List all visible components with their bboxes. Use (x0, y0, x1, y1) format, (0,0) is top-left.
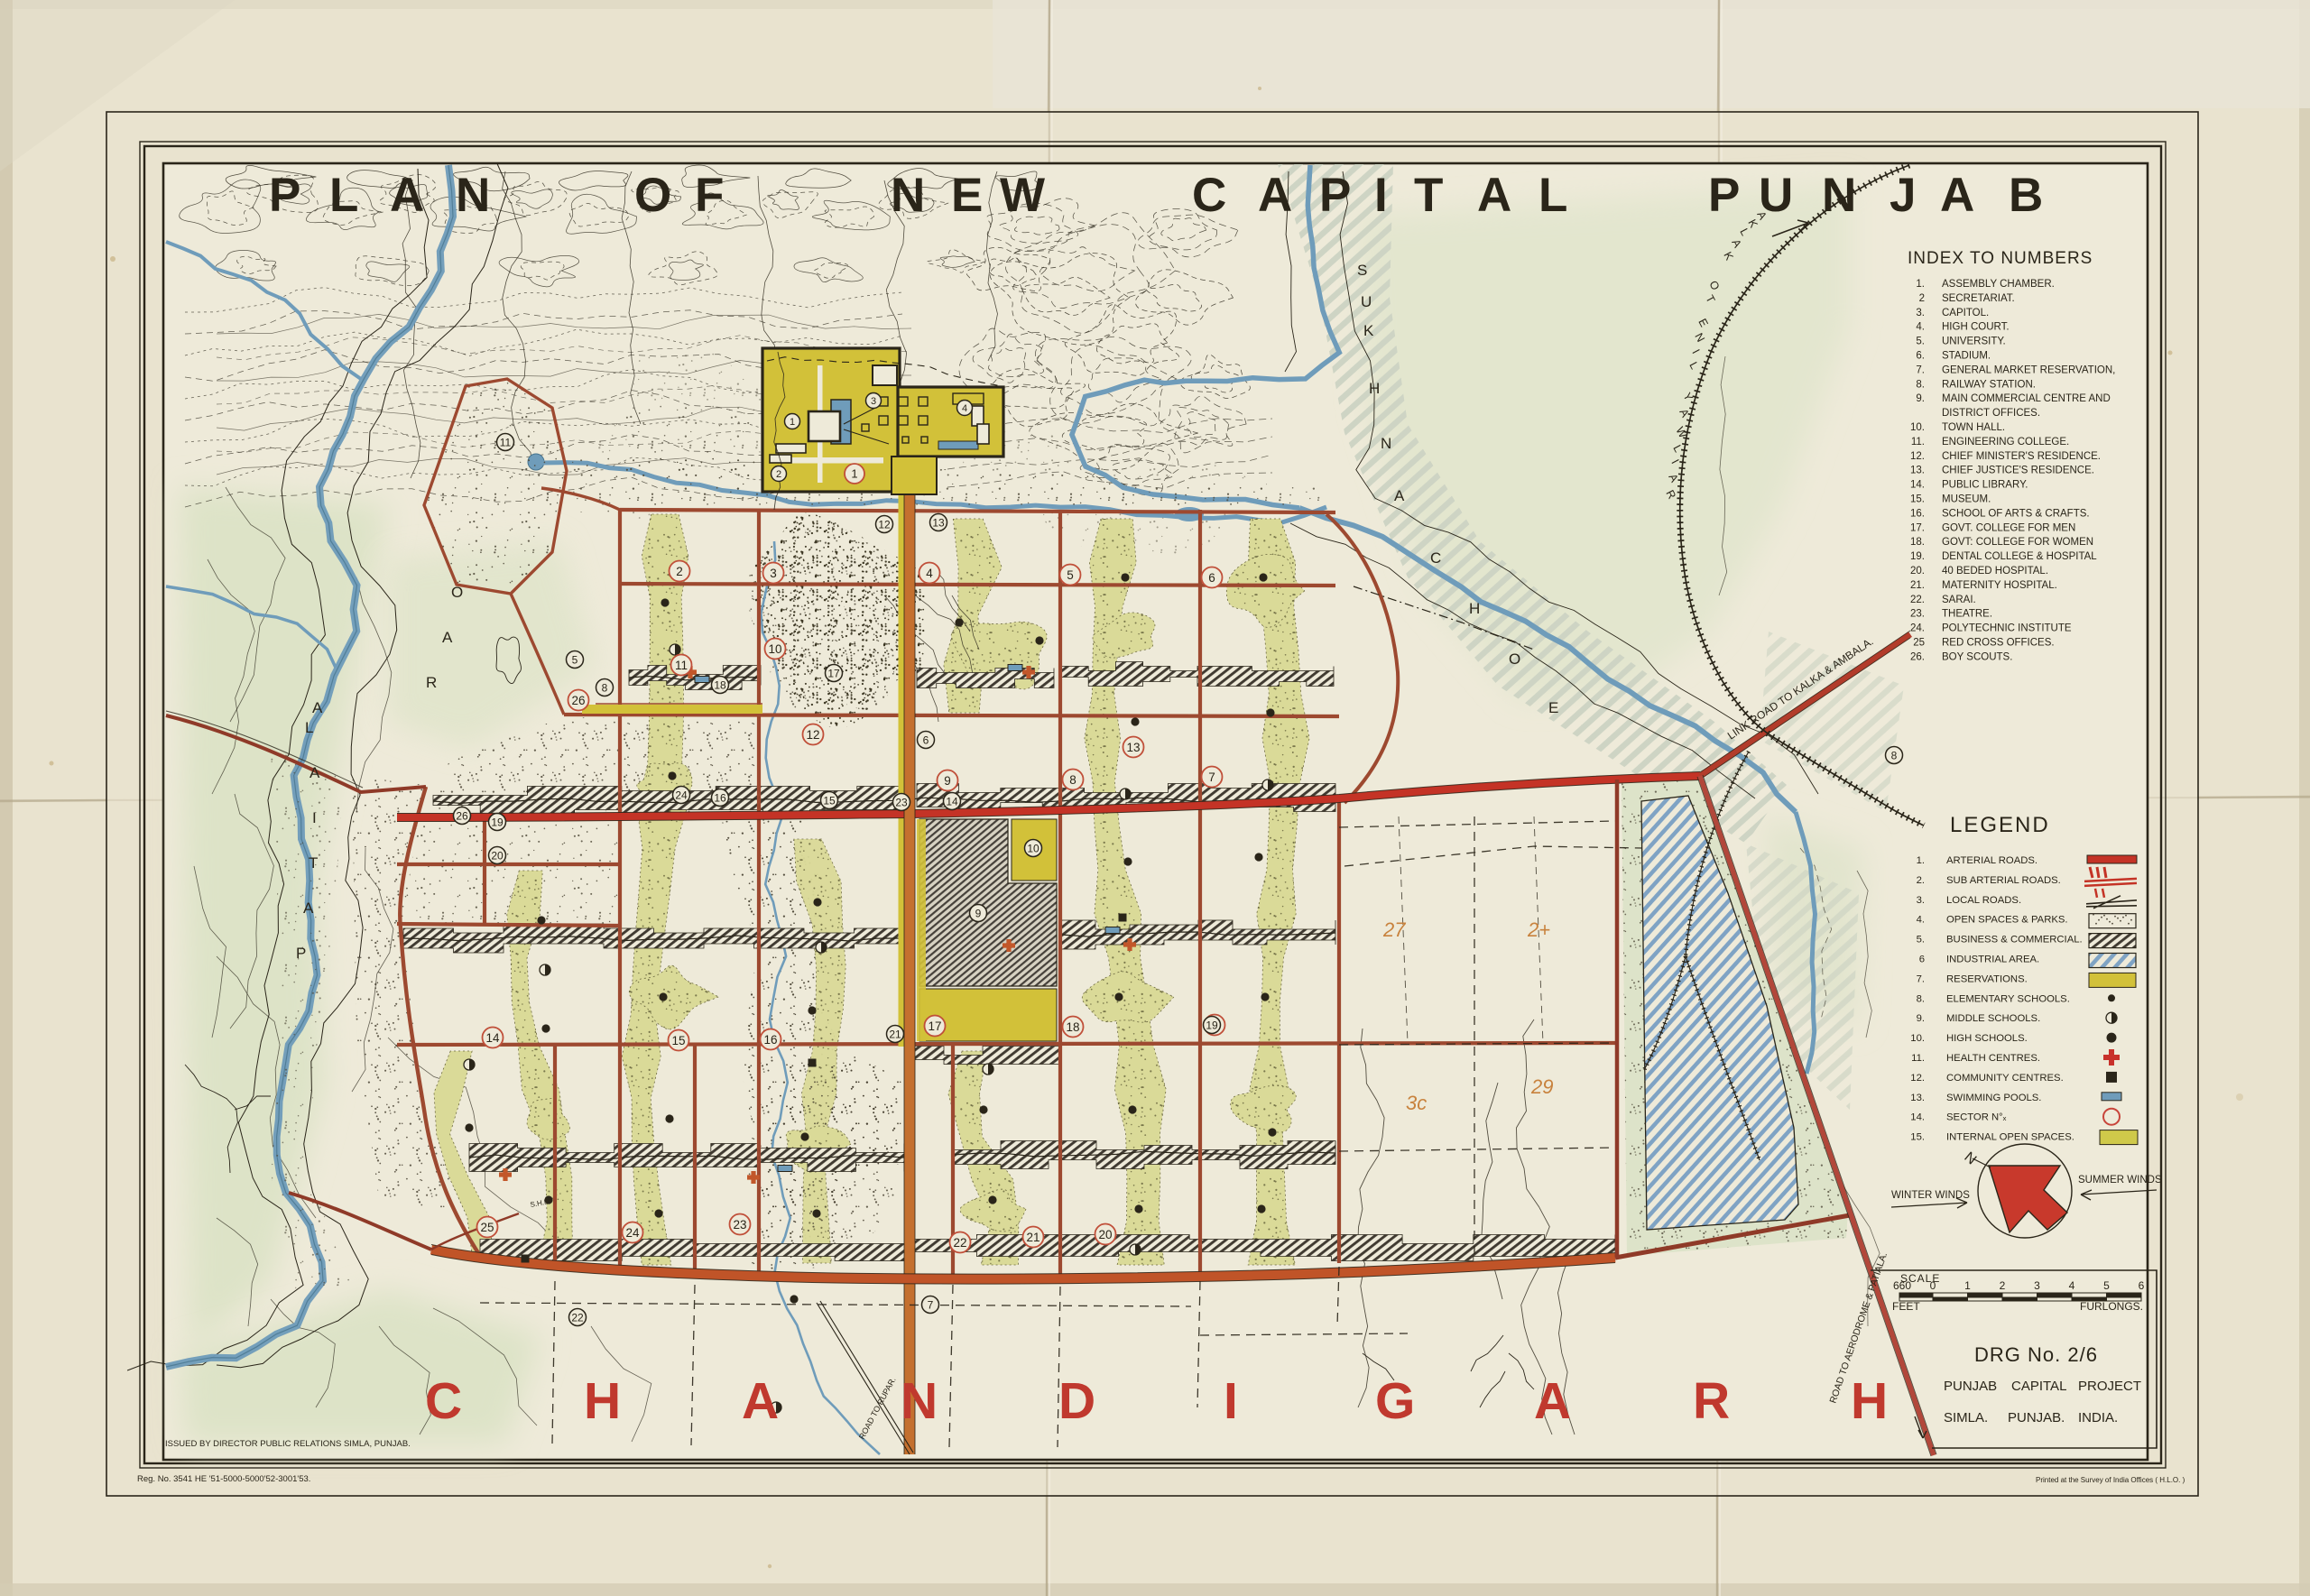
svg-text:13: 13 (932, 516, 945, 529)
svg-text:3: 3 (871, 396, 876, 407)
svg-text:13.: 13. (1910, 466, 1925, 476)
svg-text:25: 25 (480, 1221, 494, 1234)
svg-text:21.: 21. (1910, 580, 1925, 591)
svg-text:H: H (1369, 380, 1380, 397)
svg-text:8.: 8. (1917, 993, 1925, 1004)
svg-text:MAIN COMMERCIAL CENTRE AND: MAIN COMMERCIAL CENTRE AND (1942, 393, 2111, 404)
svg-text:CHIEF MINISTER'S RESIDENCE.: CHIEF MINISTER'S RESIDENCE. (1942, 451, 2101, 462)
svg-text:13.: 13. (1910, 1093, 1925, 1103)
svg-text:GOVT. COLLEGE FOR MEN: GOVT. COLLEGE FOR MEN (1942, 522, 2075, 533)
svg-text:INDUSTRIAL AREA.: INDUSTRIAL AREA. (1946, 955, 2039, 965)
svg-text:SCHOOL OF ARTS & CRAFTS.: SCHOOL OF ARTS & CRAFTS. (1942, 508, 2090, 519)
svg-text:E: E (951, 169, 983, 222)
svg-text:16: 16 (763, 1033, 777, 1047)
svg-text:P: P (1319, 169, 1351, 222)
svg-text:BOY SCOUTS.: BOY SCOUTS. (1942, 651, 2012, 662)
svg-text:15: 15 (671, 1034, 685, 1047)
svg-text:4.: 4. (1916, 322, 1925, 333)
svg-text:11: 11 (675, 659, 688, 672)
svg-text:26.: 26. (1910, 651, 1925, 662)
svg-text:R: R (426, 674, 437, 691)
svg-text:6.: 6. (1916, 351, 1925, 362)
svg-text:5: 5 (1067, 568, 1074, 582)
svg-text:11.: 11. (1911, 1053, 1925, 1064)
svg-text:A: A (442, 629, 453, 646)
svg-text:25: 25 (1913, 638, 1925, 649)
svg-text:24.: 24. (1910, 623, 1925, 634)
svg-text:ENGINEERING COLLEGE.: ENGINEERING COLLEGE. (1942, 437, 2069, 447)
svg-text:23: 23 (895, 796, 908, 808)
svg-text:8: 8 (602, 681, 608, 694)
svg-text:8: 8 (1891, 749, 1898, 761)
svg-text:O: O (1509, 650, 1520, 668)
svg-text:RAILWAY STATION.: RAILWAY STATION. (1942, 379, 2036, 390)
svg-text:2: 2 (776, 469, 781, 480)
svg-text:26: 26 (571, 694, 585, 707)
svg-text:TOWN HALL.: TOWN HALL. (1942, 422, 2005, 433)
svg-text:CHIEF JUSTICE'S RESIDENCE.: CHIEF JUSTICE'S RESIDENCE. (1942, 466, 2094, 476)
svg-text:40 BEDED HOSPITAL.: 40 BEDED HOSPITAL. (1942, 566, 2048, 577)
svg-text:DENTAL COLLEGE & HOSPITAL: DENTAL COLLEGE & HOSPITAL (1942, 551, 2097, 562)
svg-text:P: P (1708, 169, 1740, 222)
svg-text:29: 29 (1530, 1075, 1553, 1098)
svg-text:DRG No. 2/6: DRG No. 2/6 (1974, 1343, 2098, 1366)
svg-text:17: 17 (928, 1019, 941, 1033)
svg-text:R: R (1693, 1372, 1730, 1430)
svg-text:H: H (584, 1372, 621, 1430)
svg-text:12.: 12. (1910, 451, 1925, 462)
svg-text:2: 2 (2000, 1279, 2006, 1292)
svg-text:STADIUM.: STADIUM. (1942, 351, 1991, 362)
svg-text:0: 0 (1930, 1279, 1936, 1292)
svg-text:19: 19 (491, 816, 504, 828)
svg-text:O: O (634, 169, 671, 222)
svg-text:Printed at the Survey of India: Printed at the Survey of India Offices (… (2036, 1476, 2185, 1484)
svg-text:26: 26 (456, 809, 468, 822)
svg-text:ELEMENTARY SCHOOLS.: ELEMENTARY SCHOOLS. (1946, 993, 2070, 1004)
svg-text:13: 13 (1126, 741, 1140, 754)
svg-text:17: 17 (827, 667, 840, 679)
svg-text:LOCAL ROADS.: LOCAL ROADS. (1946, 895, 2021, 906)
svg-text:9: 9 (944, 774, 951, 788)
svg-text:N: N (1381, 435, 1391, 452)
svg-text:A: A (1534, 1372, 1571, 1430)
svg-text:PROJECT: PROJECT (2078, 1379, 2141, 1394)
svg-text:PUNJAB: PUNJAB (1944, 1379, 1997, 1394)
svg-text:15.: 15. (1910, 1132, 1925, 1143)
svg-text:A: A (390, 169, 424, 222)
svg-text:UNIVERSITY.: UNIVERSITY. (1942, 337, 2006, 347)
svg-text:DISTRICT OFFICES.: DISTRICT OFFICES. (1942, 408, 2040, 419)
svg-text:20.: 20. (1910, 566, 1925, 577)
svg-text:N: N (901, 1372, 938, 1430)
svg-text:H: H (1851, 1372, 1888, 1430)
svg-text:GENERAL MARKET RESERVATION,: GENERAL MARKET RESERVATION, (1942, 364, 2115, 375)
svg-text:23: 23 (733, 1218, 746, 1232)
svg-text:20: 20 (491, 849, 504, 862)
svg-text:17.: 17. (1910, 522, 1925, 533)
svg-text:L: L (305, 719, 313, 736)
svg-text:24: 24 (625, 1226, 640, 1240)
svg-text:5: 5 (572, 653, 578, 666)
svg-text:3c: 3c (1406, 1092, 1427, 1114)
svg-text:2+: 2+ (1527, 918, 1550, 941)
svg-text:4: 4 (926, 567, 933, 580)
svg-text:21: 21 (1026, 1231, 1039, 1244)
svg-text:6: 6 (923, 733, 929, 746)
svg-text:FURLONGS.: FURLONGS. (2080, 1300, 2143, 1313)
svg-text:FEET: FEET (1892, 1300, 1920, 1313)
svg-text:THEATRE.: THEATRE. (1942, 609, 1992, 620)
svg-text:6: 6 (1919, 955, 1925, 965)
svg-text:N: N (891, 169, 925, 222)
svg-text:RESERVATIONS.: RESERVATIONS. (1946, 973, 2028, 984)
svg-text:C: C (1430, 549, 1441, 567)
svg-text:1: 1 (851, 467, 857, 481)
svg-text:4.: 4. (1917, 915, 1925, 926)
svg-text:GOVT: COLLEGE FOR WOMEN: GOVT: COLLEGE FOR WOMEN (1942, 537, 2093, 548)
svg-text:INDEX TO NUMBERS: INDEX TO NUMBERS (1908, 249, 2093, 268)
svg-text:A: A (303, 899, 314, 917)
svg-text:18.: 18. (1910, 537, 1925, 548)
svg-text:I: I (312, 809, 317, 826)
svg-text:T: T (1414, 169, 1443, 222)
svg-text:18: 18 (1066, 1020, 1079, 1034)
svg-text:SIMLA.: SIMLA. (1944, 1410, 1988, 1425)
svg-text:A: A (1258, 169, 1292, 222)
svg-text:A: A (1477, 169, 1511, 222)
svg-text:MUSEUM.: MUSEUM. (1942, 494, 1991, 505)
svg-text:3.: 3. (1916, 308, 1925, 318)
svg-text:SUMMER WINDS: SUMMER WINDS (2078, 1175, 2162, 1185)
svg-text:C: C (425, 1372, 462, 1430)
svg-text:OPEN SPACES & PARKS.: OPEN SPACES & PARKS. (1946, 915, 2068, 926)
svg-text:3.: 3. (1917, 895, 1925, 906)
svg-text:22: 22 (571, 1311, 584, 1324)
svg-text:SARAI.: SARAI. (1942, 595, 1976, 605)
svg-text:10: 10 (768, 642, 781, 656)
svg-text:1: 1 (790, 417, 795, 428)
svg-text:P: P (296, 945, 306, 962)
svg-text:9.: 9. (1916, 393, 1925, 404)
svg-text:2: 2 (676, 565, 683, 578)
svg-text:9.: 9. (1917, 1013, 1925, 1024)
svg-text:Reg. No. 3541 HE '51-5000-500: Reg. No. 3541 HE '51-5000-5000'52-3001'5… (137, 1474, 310, 1484)
svg-text:INDIA.: INDIA. (2078, 1410, 2118, 1425)
svg-text:P: P (269, 169, 300, 222)
svg-text:5.: 5. (1917, 935, 1925, 946)
svg-text:10.: 10. (1910, 1033, 1925, 1044)
svg-text:MATERNITY HOSPITAL.: MATERNITY HOSPITAL. (1942, 580, 2057, 591)
svg-text:K: K (1363, 322, 1374, 339)
svg-text:PUBLIC LIBRARY.: PUBLIC LIBRARY. (1942, 480, 2028, 491)
svg-text:INTERNAL OPEN SPACES.: INTERNAL OPEN SPACES. (1946, 1132, 2074, 1143)
svg-text:4: 4 (962, 403, 967, 414)
svg-text:COMMUNITY CENTRES.: COMMUNITY CENTRES. (1946, 1073, 2064, 1084)
svg-text:15: 15 (823, 794, 836, 807)
svg-text:T: T (309, 854, 318, 872)
svg-text:3: 3 (770, 567, 777, 580)
svg-text:2: 2 (1919, 293, 1925, 304)
svg-text:2.: 2. (1917, 875, 1925, 886)
svg-text:A: A (312, 699, 323, 716)
svg-text:A: A (742, 1372, 779, 1430)
svg-text:1: 1 (1964, 1279, 1971, 1292)
svg-text:MIDDLE SCHOOLS.: MIDDLE SCHOOLS. (1946, 1013, 2040, 1024)
svg-text:11.: 11. (1911, 437, 1925, 447)
svg-text:I: I (1374, 169, 1388, 222)
svg-text:A: A (1394, 487, 1405, 504)
svg-text:14.: 14. (1910, 1112, 1925, 1123)
svg-text:S: S (1357, 262, 1367, 279)
svg-text:11: 11 (500, 436, 512, 448)
svg-text:J: J (1890, 169, 1916, 222)
svg-text:PUNJAB.: PUNJAB. (2008, 1410, 2065, 1425)
svg-text:1.: 1. (1917, 855, 1925, 866)
svg-text:6: 6 (1208, 571, 1215, 585)
svg-text:SUB ARTERIAL ROADS.: SUB ARTERIAL ROADS. (1946, 875, 2061, 886)
svg-text:12: 12 (878, 518, 891, 530)
svg-text:6: 6 (2139, 1279, 2145, 1292)
svg-text:C: C (1192, 169, 1226, 222)
svg-text:F: F (695, 169, 724, 222)
svg-text:ARTERIAL ROADS.: ARTERIAL ROADS. (1946, 855, 2037, 866)
svg-text:16: 16 (714, 791, 726, 804)
svg-text:B: B (2009, 169, 2043, 222)
svg-text:SECRETARIAT.: SECRETARIAT. (1942, 293, 2015, 304)
svg-text:7.: 7. (1917, 973, 1925, 984)
svg-text:H: H (1469, 600, 1480, 617)
svg-text:14: 14 (485, 1031, 500, 1045)
svg-text:CAPITAL: CAPITAL (2011, 1379, 2066, 1394)
svg-text:23.: 23. (1910, 609, 1925, 620)
svg-text:14: 14 (946, 795, 958, 807)
svg-text:9: 9 (975, 907, 982, 919)
svg-text:22: 22 (953, 1236, 966, 1250)
svg-text:CAPITOL.: CAPITOL. (1942, 308, 1989, 318)
svg-text:14.: 14. (1910, 480, 1925, 491)
svg-text:SECTOR N°ₓ: SECTOR N°ₓ (1946, 1112, 2007, 1123)
svg-text:21: 21 (889, 1028, 901, 1040)
svg-text:7.: 7. (1916, 364, 1925, 375)
svg-text:4: 4 (2069, 1279, 2075, 1292)
svg-text:HIGH COURT.: HIGH COURT. (1942, 322, 2010, 333)
svg-text:I: I (1224, 1372, 1238, 1430)
svg-text:RED CROSS OFFICES.: RED CROSS OFFICES. (1942, 638, 2055, 649)
svg-text:18: 18 (714, 678, 726, 691)
svg-text:20: 20 (1098, 1228, 1112, 1241)
svg-text:G: G (1375, 1372, 1415, 1430)
svg-text:12: 12 (806, 728, 819, 742)
svg-text:LEGEND: LEGEND (1950, 813, 2050, 837)
svg-text:L: L (329, 169, 358, 222)
svg-text:15.: 15. (1910, 494, 1925, 505)
svg-text:19.: 19. (1910, 551, 1925, 562)
svg-text:7: 7 (1208, 770, 1215, 784)
svg-text:A: A (1940, 169, 1974, 222)
svg-text:27: 27 (1382, 918, 1406, 941)
svg-text:660: 660 (1893, 1279, 1911, 1292)
svg-text:ASSEMBLY CHAMBER.: ASSEMBLY CHAMBER. (1942, 279, 2055, 290)
svg-text:1.: 1. (1916, 279, 1925, 290)
svg-text:POLYTECHNIC INSTITUTE: POLYTECHNIC INSTITUTE (1942, 623, 2072, 634)
svg-text:ISSUED BY DIRECTOR PUBLIC: ISSUED BY DIRECTOR PUBLIC RELATIONS SIML… (165, 1439, 411, 1449)
svg-text:SWIMMING POOLS.: SWIMMING POOLS. (1946, 1093, 2041, 1103)
svg-text:N: N (456, 169, 490, 222)
svg-text:12.: 12. (1910, 1073, 1925, 1084)
svg-text:BUSINESS & COMMERCIAL.: BUSINESS & COMMERCIAL. (1946, 935, 2083, 946)
svg-text:HEALTH CENTRES.: HEALTH CENTRES. (1946, 1053, 2040, 1064)
svg-text:8: 8 (1069, 773, 1076, 787)
svg-text:10: 10 (1027, 842, 1039, 854)
svg-text:E: E (1548, 699, 1558, 716)
svg-text:8.: 8. (1916, 379, 1925, 390)
svg-text:L: L (1538, 169, 1567, 222)
svg-text:O: O (451, 584, 463, 601)
svg-text:U: U (1361, 293, 1372, 310)
svg-text:24: 24 (675, 789, 688, 801)
svg-text:5: 5 (2103, 1279, 2110, 1292)
svg-text:16.: 16. (1910, 508, 1925, 519)
svg-text:N: N (1822, 169, 1856, 222)
svg-text:10.: 10. (1910, 422, 1925, 433)
svg-text:7: 7 (928, 1298, 934, 1311)
svg-text:5.: 5. (1916, 337, 1925, 347)
svg-text:3: 3 (2034, 1279, 2040, 1292)
svg-text:HIGH SCHOOLS.: HIGH SCHOOLS. (1946, 1033, 2028, 1044)
svg-text:19: 19 (1206, 1019, 1218, 1031)
svg-text:W: W (1000, 169, 1045, 222)
svg-text:A: A (310, 764, 320, 781)
svg-text:D: D (1058, 1372, 1095, 1430)
svg-text:22.: 22. (1910, 595, 1925, 605)
